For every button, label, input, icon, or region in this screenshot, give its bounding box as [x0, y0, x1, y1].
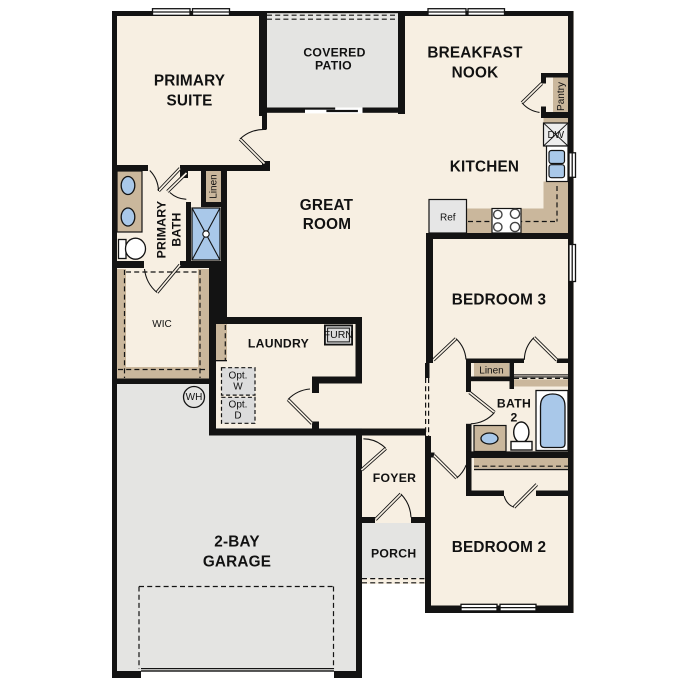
svg-text:2: 2 [510, 411, 517, 425]
svg-text:BREAKFAST: BREAKFAST [427, 45, 523, 62]
svg-text:PRIMARY: PRIMARY [154, 73, 225, 90]
svg-text:BEDROOM 3: BEDROOM 3 [452, 292, 546, 309]
svg-text:PRIMARY: PRIMARY [155, 201, 169, 259]
svg-text:LAUNDRY: LAUNDRY [248, 337, 309, 351]
svg-text:Linen: Linen [209, 174, 220, 198]
svg-text:WH: WH [186, 392, 203, 403]
svg-text:BATH: BATH [497, 397, 531, 411]
svg-text:PATIO: PATIO [315, 59, 352, 73]
svg-text:D: D [234, 411, 241, 422]
svg-text:COVERED: COVERED [303, 46, 365, 60]
svg-text:BATH: BATH [170, 212, 184, 246]
svg-text:FURN: FURN [324, 329, 353, 341]
svg-text:FOYER: FOYER [373, 471, 416, 485]
svg-text:WIC: WIC [152, 319, 171, 330]
svg-text:NOOK: NOOK [452, 65, 499, 82]
svg-text:ROOM: ROOM [303, 216, 351, 233]
svg-text:GARAGE: GARAGE [203, 554, 271, 571]
svg-text:W: W [233, 382, 243, 393]
svg-text:Linen: Linen [479, 365, 503, 376]
svg-text:Pantry: Pantry [556, 82, 567, 111]
svg-text:KITCHEN: KITCHEN [450, 159, 519, 176]
svg-text:Opt.: Opt. [229, 371, 248, 382]
svg-text:DW: DW [547, 130, 564, 141]
svg-text:BEDROOM 2: BEDROOM 2 [452, 539, 546, 556]
svg-text:PORCH: PORCH [371, 547, 417, 561]
svg-text:2-BAY: 2-BAY [214, 534, 260, 551]
svg-text:Ref: Ref [440, 213, 456, 224]
svg-text:Opt.: Opt. [229, 400, 248, 411]
svg-text:GREAT: GREAT [300, 197, 354, 214]
svg-text:SUITE: SUITE [166, 93, 212, 110]
